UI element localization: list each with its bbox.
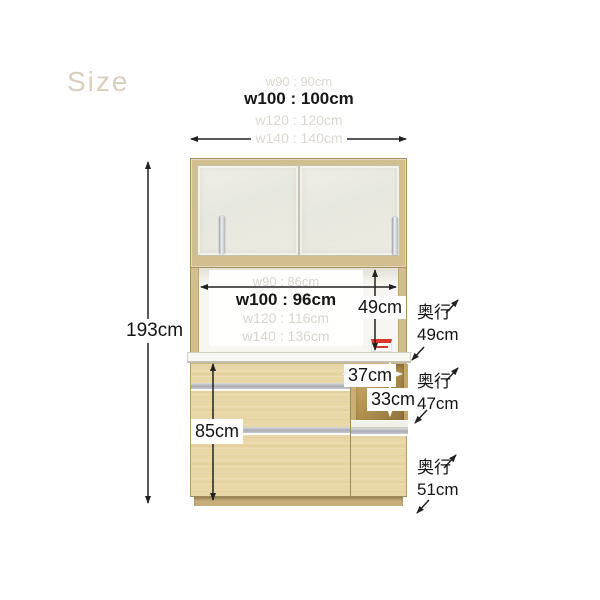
sliding-glass-door-right (299, 165, 400, 256)
drawer-highlight (351, 434, 408, 436)
top-width-w140: w140 : 140cm (224, 130, 374, 146)
inner-width-labels: w90 : 86cm w100 : 96cm w120 : 116cm w140… (209, 270, 363, 346)
upper-open-height-label: 49cm (354, 296, 406, 319)
size-diagram: Size w90 : 90cm w100 : 100cm w120 : 120c… (0, 0, 600, 600)
depth-upper-value: 49cm (417, 324, 471, 346)
door-handle-icon (392, 217, 398, 255)
depth-lower-value: 51cm (417, 479, 471, 501)
top-width-w100: w100 : 100cm (224, 89, 374, 109)
total-height-label: 193cm (122, 319, 187, 343)
drawer-highlight (191, 389, 350, 391)
niche-width-label: 37cm (344, 364, 396, 387)
depth-middle-value: 47cm (417, 393, 471, 415)
inner-width-w90: w90 : 86cm (209, 274, 363, 290)
toe-kick (194, 497, 403, 506)
slide-shelf (351, 420, 408, 428)
open-shelf-side-left (190, 268, 199, 352)
sliding-glass-door-left (197, 165, 299, 256)
depth-label: 奥行 (417, 371, 471, 393)
top-width-w90: w90 : 90cm (224, 74, 374, 89)
depth-middle: 奥行 47cm (417, 371, 471, 415)
arrow-depth-lower-sw (417, 500, 429, 513)
arrow-depth-upper-sw (412, 347, 424, 360)
top-width-w120: w120 : 120cm (224, 112, 374, 128)
inner-width-w140: w140 : 136cm (209, 328, 363, 346)
inner-width-w100: w100 : 96cm (209, 290, 363, 310)
door-handle-icon (219, 216, 225, 254)
depth-label: 奥行 (417, 302, 471, 324)
niche-height-label: 33cm (367, 388, 419, 411)
base-height-label: 85cm (191, 419, 243, 444)
outlet-icon (371, 339, 392, 352)
page-title: Size (67, 66, 129, 98)
counter-top (187, 352, 411, 363)
depth-upper: 奥行 49cm (417, 302, 471, 346)
inner-width-w120: w120 : 116cm (209, 310, 363, 328)
depth-label: 奥行 (417, 457, 471, 479)
depth-lower: 奥行 51cm (417, 457, 471, 501)
